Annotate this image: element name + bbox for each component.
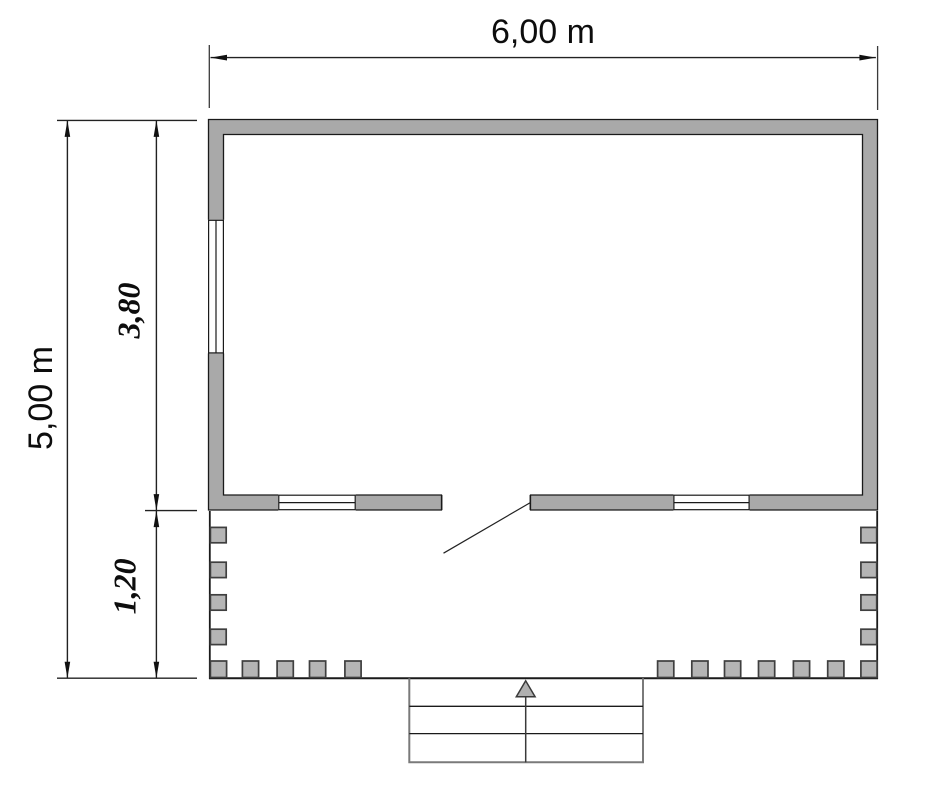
svg-text:6,00 m: 6,00 m <box>491 13 595 51</box>
svg-text:5,00 m: 5,00 m <box>22 346 60 450</box>
svg-text:3,80: 3,80 <box>111 283 147 340</box>
svg-text:1,20: 1,20 <box>107 558 143 614</box>
